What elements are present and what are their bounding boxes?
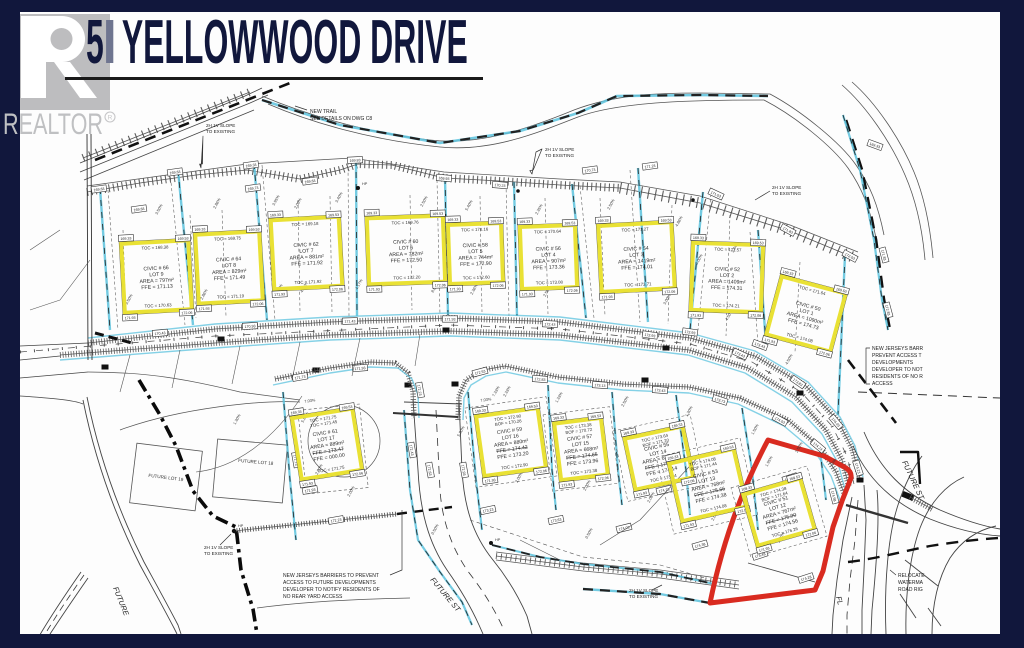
svg-text:TO EXISTING: TO EXISTING bbox=[545, 153, 574, 158]
svg-text:R: R bbox=[108, 115, 113, 122]
svg-text:DEVELOPER TO NOTIFY RESIDENTS: DEVELOPER TO NOTIFY RESIDENTS OF bbox=[283, 587, 380, 593]
svg-text:FFE = 174.31: FFE = 174.31 bbox=[711, 285, 743, 292]
svg-text:TOC = 170.16: TOC = 170.16 bbox=[461, 227, 489, 233]
svg-text:FFE = 173.36: FFE = 173.36 bbox=[533, 264, 565, 271]
svg-text:171.93: 171.93 bbox=[690, 313, 701, 317]
svg-text:172.06: 172.06 bbox=[750, 313, 761, 317]
svg-text:TOC = 173.08: TOC = 173.08 bbox=[536, 279, 564, 285]
svg-text:169.53: 169.53 bbox=[490, 219, 501, 223]
svg-text:REALTOR: REALTOR bbox=[3, 108, 103, 141]
svg-text:DEVELOPMENTS: DEVELOPMENTS bbox=[872, 360, 914, 366]
svg-text:SEE DETAILS ON DWG C8: SEE DETAILS ON DWG C8 bbox=[310, 116, 372, 122]
svg-text:NEW JERSEYS BARR: NEW JERSEYS BARR bbox=[872, 346, 924, 352]
svg-text:169.33: 169.33 bbox=[194, 227, 205, 232]
svg-text:NO REAR YARD ACCESS: NO REAR YARD ACCESS bbox=[283, 594, 343, 600]
svg-text:TOC = 174.21: TOC = 174.21 bbox=[712, 303, 740, 309]
svg-text:ACCESS: ACCESS bbox=[872, 381, 893, 387]
svg-text:2H 1V SLOPE: 2H 1V SLOPE bbox=[206, 123, 235, 128]
svg-text:169.33: 169.33 bbox=[120, 236, 131, 241]
svg-text:173.13: 173.13 bbox=[594, 383, 605, 388]
svg-text:WATERMA: WATERMA bbox=[898, 580, 924, 586]
svg-text:169.53: 169.53 bbox=[177, 236, 188, 241]
svg-text:RESIDENTS OF NO R: RESIDENTS OF NO R bbox=[872, 374, 923, 380]
svg-text:169.53: 169.53 bbox=[661, 218, 672, 223]
svg-text:169.53: 169.53 bbox=[432, 212, 443, 216]
svg-text:HP: HP bbox=[238, 524, 244, 528]
svg-text:169.83: 169.83 bbox=[349, 158, 360, 163]
svg-text:172.06: 172.06 bbox=[332, 287, 343, 292]
svg-text:2H 1V SLOPE: 2H 1V SLOPE bbox=[545, 147, 574, 152]
svg-text:169.53: 169.53 bbox=[564, 221, 575, 225]
svg-text:RELOCATE: RELOCATE bbox=[898, 573, 925, 579]
svg-text:TOC = 172.20: TOC = 172.20 bbox=[393, 274, 421, 280]
svg-text:TOC = 171.57: TOC = 171.57 bbox=[714, 247, 742, 253]
svg-text:172.06: 172.06 bbox=[435, 283, 446, 287]
svg-text:169.33: 169.33 bbox=[447, 218, 458, 222]
svg-text:NEW TRAIL: NEW TRAIL bbox=[310, 109, 337, 115]
svg-text:FFE = 172.50: FFE = 172.50 bbox=[390, 257, 422, 264]
svg-text:171.43: 171.43 bbox=[344, 319, 355, 323]
svg-text:169.33: 169.33 bbox=[366, 211, 377, 215]
svg-text:169.53: 169.53 bbox=[753, 241, 764, 245]
svg-text:171.93: 171.93 bbox=[445, 318, 456, 322]
svg-text:HP: HP bbox=[495, 538, 501, 542]
svg-text:171.93: 171.93 bbox=[125, 316, 136, 321]
svg-text:ROAD RIG: ROAD RIG bbox=[898, 587, 923, 593]
svg-text:171.93: 171.93 bbox=[450, 287, 461, 291]
svg-text:172.06: 172.06 bbox=[567, 289, 578, 293]
svg-text:FFE = 172.90: FFE = 172.90 bbox=[460, 261, 492, 268]
svg-text:169.33: 169.33 bbox=[270, 213, 281, 218]
svg-text:172.06: 172.06 bbox=[664, 290, 675, 295]
svg-text:171.93: 171.93 bbox=[369, 288, 380, 292]
svg-text:ACCESS TO FUTURE DEVELOPMENTS: ACCESS TO FUTURE DEVELOPMENTS bbox=[283, 580, 377, 586]
svg-text:HP: HP bbox=[362, 182, 368, 186]
svg-text:171.93: 171.93 bbox=[199, 307, 210, 312]
svg-text:169.33: 169.33 bbox=[597, 219, 608, 224]
svg-text:171.93: 171.93 bbox=[274, 292, 285, 297]
svg-text:TO EXISTING: TO EXISTING bbox=[204, 551, 233, 556]
svg-text:171.93: 171.93 bbox=[522, 292, 533, 296]
svg-text:TO EXISTING: TO EXISTING bbox=[772, 191, 801, 196]
svg-text:172.06: 172.06 bbox=[252, 302, 263, 307]
svg-text:172.43: 172.43 bbox=[544, 322, 555, 327]
svg-text:NEW JERSEYS BARRIERS TO PREVEN: NEW JERSEYS BARRIERS TO PREVENT bbox=[283, 573, 379, 579]
svg-text:172.06: 172.06 bbox=[493, 284, 504, 288]
svg-text:PREVENT ACCESS T: PREVENT ACCESS T bbox=[872, 353, 922, 359]
svg-text:172.06: 172.06 bbox=[181, 311, 192, 316]
svg-text:2H 1V SLOPE: 2H 1V SLOPE bbox=[772, 185, 801, 190]
svg-text:TOC = 172.60: TOC = 172.60 bbox=[463, 274, 491, 280]
svg-text:TOC = 170.64: TOC = 170.64 bbox=[534, 229, 562, 235]
svg-text:169.33: 169.33 bbox=[693, 236, 704, 240]
svg-text:169.53: 169.53 bbox=[328, 213, 339, 218]
svg-text:TOC = 169.76: TOC = 169.76 bbox=[391, 220, 419, 226]
svg-text:169.33: 169.33 bbox=[519, 220, 530, 224]
svg-text:169.53: 169.53 bbox=[248, 227, 259, 232]
svg-text:2H 1V SLOPE: 2H 1V SLOPE bbox=[204, 545, 233, 550]
svg-text:170.93: 170.93 bbox=[244, 324, 255, 329]
svg-text:171.93: 171.93 bbox=[601, 295, 612, 300]
svg-text:TO EXISTING: TO EXISTING bbox=[629, 594, 658, 599]
svg-text:DEVELOPER TO NOT: DEVELOPER TO NOT bbox=[872, 367, 923, 373]
svg-text:TO EXISTING: TO EXISTING bbox=[206, 129, 235, 134]
